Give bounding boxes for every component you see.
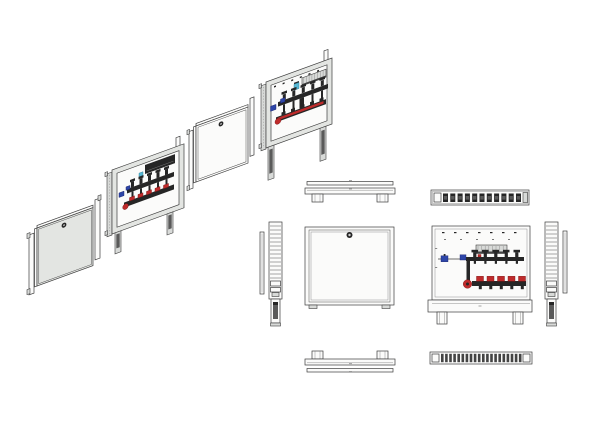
foot-pad	[271, 323, 281, 326]
iso-door-white	[187, 97, 254, 191]
upper-manifold-bar	[466, 257, 524, 261]
iso-cabinet-manifold	[105, 135, 184, 258]
vertical-connector	[467, 261, 471, 281]
tick-mark	[435, 248, 437, 249]
door-edge-bar	[307, 182, 393, 186]
frame-outline	[305, 227, 394, 305]
ortho-side-right	[545, 222, 567, 326]
feet-pair	[312, 194, 388, 202]
ortho-bottom-closed	[305, 351, 395, 372]
frame-rail-right	[95, 198, 100, 260]
end-box	[434, 193, 441, 202]
mount-tab	[187, 185, 190, 190]
rail-block	[271, 288, 281, 293]
frame-rail-right	[250, 97, 254, 156]
junction-box-strip	[476, 252, 507, 254]
ortho-bottom-manifold	[430, 352, 532, 364]
cabinet-bottom-bar	[305, 359, 395, 365]
iso-door-assembly	[27, 195, 101, 296]
lower-manifold-bar	[472, 281, 526, 286]
ortho-top-manifold	[431, 190, 529, 205]
rail-block	[547, 281, 557, 286]
rail-clamp	[272, 293, 279, 297]
rail-block	[547, 288, 557, 293]
mount-tab	[27, 233, 30, 239]
mount-tab	[259, 84, 262, 89]
ortho-front-open	[428, 226, 532, 324]
foot-pad	[547, 323, 557, 326]
mount-tab	[27, 289, 30, 295]
rail-block	[271, 281, 281, 286]
mount-tab	[98, 195, 101, 201]
frame-rail-left	[189, 130, 193, 189]
frame-rail-left	[29, 233, 34, 295]
pump-center	[466, 283, 469, 286]
blue-shutoff-valve	[441, 256, 448, 262]
tick-mark	[435, 267, 437, 268]
ortho-front-closed	[305, 227, 394, 309]
iso-cabinet-open	[259, 48, 332, 184]
door-side-edge	[35, 228, 38, 287]
feet-pair	[312, 351, 388, 359]
lock-keyhole	[348, 234, 350, 236]
blue-shutoff-valve	[460, 255, 466, 260]
legs-pair	[437, 312, 523, 324]
mount-tab	[105, 172, 108, 177]
end-cap	[432, 354, 439, 362]
drawing-canvas	[0, 0, 600, 424]
leg-band	[549, 302, 554, 305]
ortho-top-closed	[305, 180, 395, 202]
slotted-rail-left	[261, 84, 266, 151]
leg-band	[273, 302, 278, 305]
mount-tab	[187, 129, 190, 134]
end-cap	[523, 193, 528, 203]
ortho-side-left	[260, 222, 282, 326]
mount-tab	[259, 144, 262, 149]
foot-stub	[309, 305, 317, 309]
valve-stem	[444, 254, 446, 256]
mount-tab	[105, 231, 108, 236]
door-side-edge	[194, 126, 197, 183]
red-indicator	[478, 255, 481, 258]
foot-stub	[382, 305, 390, 309]
rail-clamp	[548, 293, 555, 297]
technical-drawing	[0, 0, 600, 424]
manifold-components-top	[443, 194, 521, 203]
end-cap	[523, 354, 530, 362]
